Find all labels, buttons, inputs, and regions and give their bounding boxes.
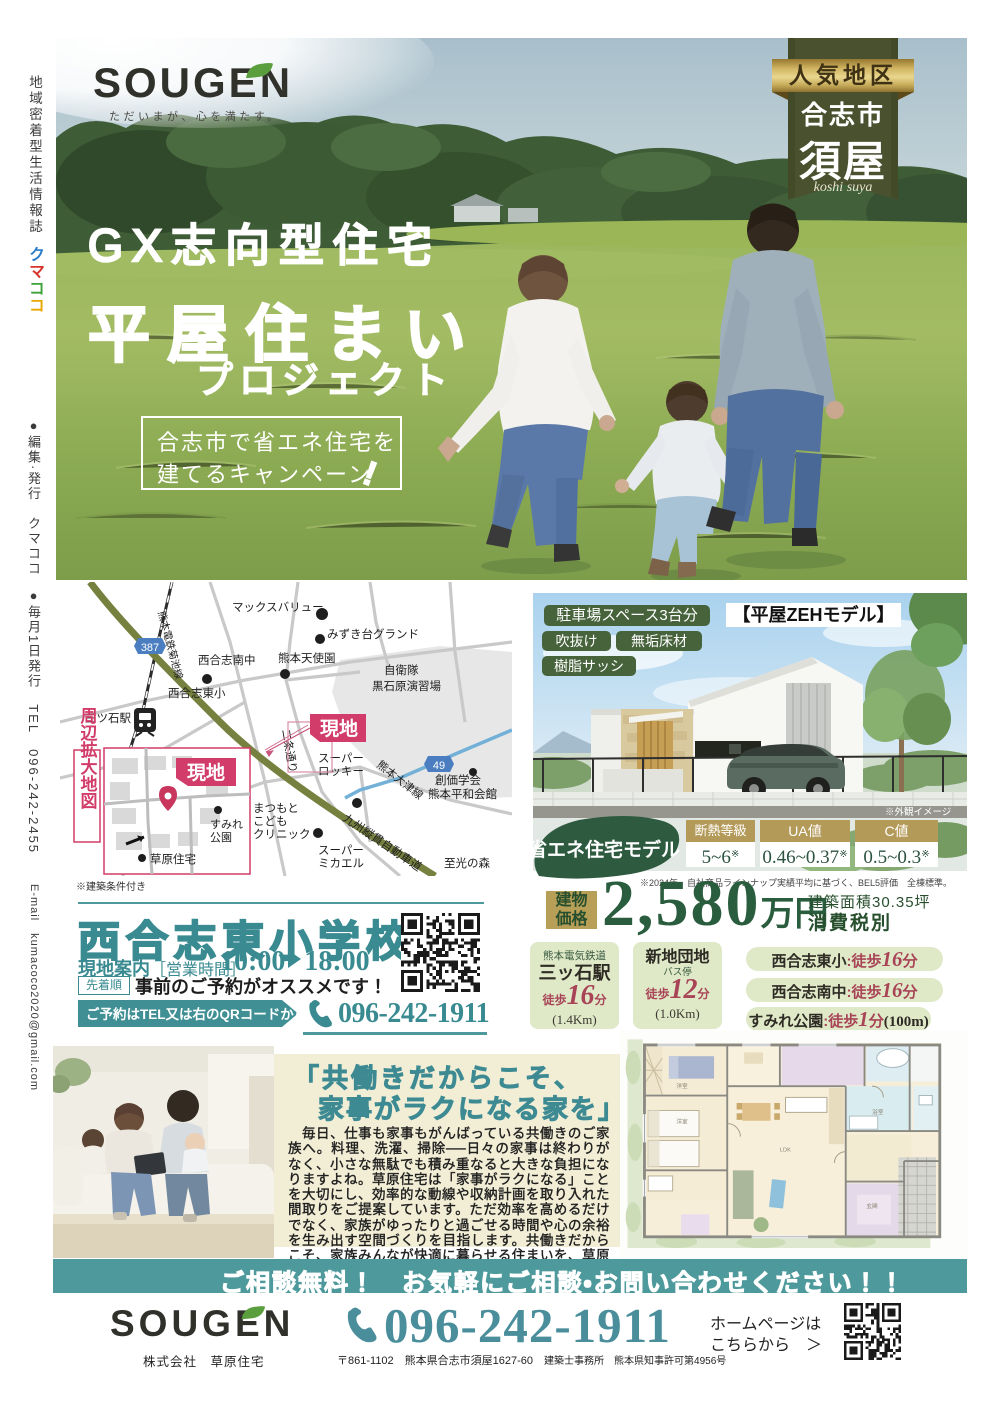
svg-text:49: 49 (433, 760, 445, 772)
svg-text:クリニック: クリニック (253, 828, 311, 841)
svg-text:周辺拡大地図: 周辺拡大地図 (78, 707, 98, 810)
svg-text:ご予約はTEL又は右のQRコードから: ご予約はTEL又は右のQRコードから (86, 1006, 298, 1022)
svg-text:省エネ住宅モデル: 省エネ住宅モデル (531, 838, 680, 861)
svg-text:西合志東小: 西合志東小 (168, 687, 226, 700)
svg-text:公園: 公園 (210, 831, 232, 844)
svg-text:創価学会: 創価学会 (435, 773, 481, 787)
svg-text:玄関: 玄関 (866, 1202, 878, 1210)
svg-text:スーパー: スーパー (318, 844, 364, 857)
svg-text:自衛隊: 自衛隊 (384, 663, 419, 677)
svg-text:合志市: 合志市 (801, 100, 885, 130)
svg-text:至光の森: 至光の森 (444, 856, 490, 870)
svg-text:現地: 現地 (187, 761, 225, 784)
svg-text:みずき台グランド: みずき台グランド (327, 627, 419, 641)
svg-text:須屋: 須屋 (799, 138, 887, 185)
svg-text:人気地区: 人気地区 (788, 62, 897, 88)
svg-text:黒石原演習場: 黒石原演習場 (372, 680, 441, 693)
svg-text:ミカエル: ミカエル (318, 857, 364, 870)
svg-text:スーパー: スーパー (318, 752, 364, 765)
svg-text:koshi suya: koshi suya (814, 180, 873, 195)
svg-text:熊本平和会館: 熊本平和会館 (428, 787, 497, 801)
svg-text:387: 387 (141, 642, 159, 654)
svg-text:西合志南中: 西合志南中 (198, 653, 256, 667)
svg-text:まつもと: まつもと (253, 802, 299, 815)
svg-text:LDK: LDK (780, 1148, 791, 1154)
svg-text:すみれ: すみれ (210, 818, 243, 831)
svg-text:現地: 現地 (320, 717, 358, 740)
svg-text:洋室: 洋室 (676, 1118, 688, 1126)
svg-text:こども: こども (253, 815, 288, 828)
svg-text:洋室: 洋室 (676, 1082, 688, 1090)
svg-text:熊本天使園: 熊本天使園 (278, 651, 336, 665)
svg-text:※外観イメージ: ※外観イメージ (885, 806, 951, 818)
svg-text:マックスバリュー: マックスバリュー (232, 601, 324, 614)
svg-text:草原住宅: 草原住宅 (150, 852, 196, 866)
svg-text:浴室: 浴室 (872, 1108, 884, 1116)
